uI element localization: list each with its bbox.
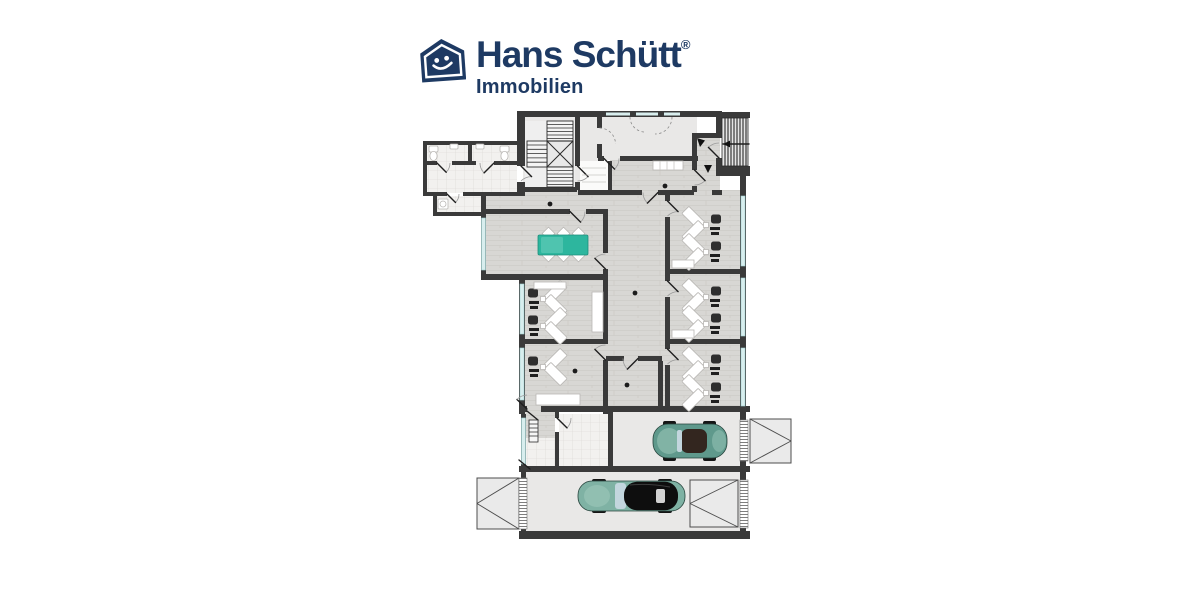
car-lower — [578, 479, 685, 513]
garage-door-upper-right — [740, 419, 791, 463]
entrance-hall-floor — [600, 116, 697, 160]
brand-name: Hans Schütt® — [476, 36, 690, 73]
conference-table — [538, 227, 588, 262]
storage-room-floor — [559, 414, 608, 466]
garage-door-lower-left — [477, 478, 527, 529]
external-staircase — [722, 118, 749, 166]
brand-subtitle: Immobilien — [476, 76, 690, 99]
registered-mark: ® — [681, 37, 691, 52]
car-upper — [653, 421, 727, 461]
house-smiley-icon — [420, 38, 466, 90]
basement-ladder-stair — [529, 420, 538, 442]
floor-plan — [420, 108, 797, 545]
page: Hans Schütt® Immobilien — [0, 0, 1200, 600]
company-logo: Hans Schütt® Immobilien — [420, 36, 690, 99]
